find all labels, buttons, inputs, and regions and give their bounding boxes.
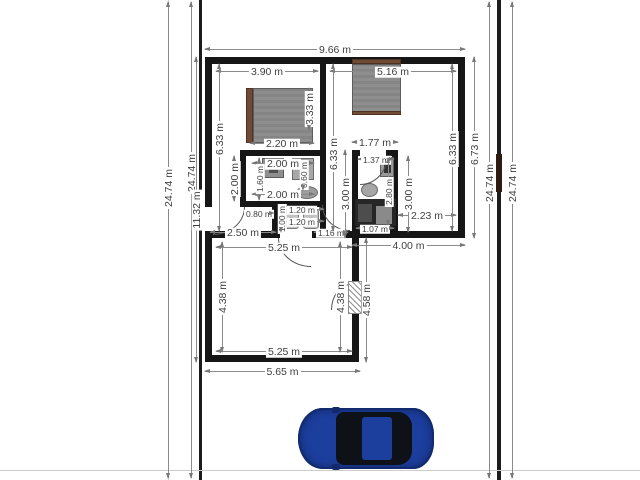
fence-right [497, 0, 501, 480]
wall-top [205, 57, 465, 64]
dim-wc-height: 1.00 m [281, 205, 282, 232]
wall-bath-left [240, 150, 246, 207]
bed-left-headboard[interactable] [246, 88, 253, 143]
dim-right-height-outer: 6.73 m [474, 57, 475, 238]
dim-bedroom-left-width: 3.90 m [216, 71, 318, 72]
dim-lot-depth-left-inner: 24.74 m [191, 2, 192, 478]
wall-right [458, 57, 465, 238]
gate-right[interactable] [496, 154, 502, 192]
kitchen-counter-sink [358, 204, 372, 222]
bed-right-footboard[interactable] [352, 111, 401, 115]
lot-bottom-line [0, 470, 640, 471]
dim-center-height: 6.33 m [333, 64, 334, 231]
dim-right-gap: 2.23 m [398, 215, 456, 216]
dim-corridor-height: 3.00 m [345, 150, 346, 238]
dim-living-width-bottom: 5.25 m [216, 351, 352, 352]
dim-right-height-inner: 6.33 m [452, 64, 453, 231]
dim-lot-depth-right-outer: 24.74 m [512, 2, 513, 478]
dim-bed-left-height: 3.33 m [309, 88, 310, 130]
dim-hall-width: 2.50 m [210, 232, 276, 233]
dim-bath-inner-height: 1.60 m [259, 158, 260, 200]
car[interactable] [298, 408, 434, 469]
dim-bath-height: 2.00 m [234, 156, 235, 201]
dim-bedroom-left-height: 6.33 m [219, 64, 220, 231]
kitchen-basin[interactable] [361, 183, 378, 197]
dim-bed-left-width: 2.20 m [250, 143, 314, 144]
car-mirror-bottom [332, 464, 340, 470]
fence-left [199, 0, 202, 480]
dim-lot-depth-left-outer: 24.74 m [168, 2, 169, 478]
dim-bottom-right-width: 4.00 m [352, 245, 465, 246]
wall-left-upper [205, 57, 212, 207]
wall-bath-top [240, 150, 326, 156]
dim-kitchen-height-inner: 2.80 m [388, 158, 389, 225]
dim-living-outer-height: 4.58 m [366, 238, 367, 362]
dim-kitchen-width-outer: 1.77 m [352, 142, 398, 143]
dim-bath-width-bottom: 2.00 m [252, 194, 314, 195]
dim-living-height-right: 4.38 m [340, 242, 341, 352]
dim-lot-depth-right-inner: 24.74 m [489, 2, 490, 478]
floor-plan-canvas: 24.74 m 24.74 m 11.32 m 24.74 m 24.74 m [0, 0, 640, 480]
wall-living-right-lower [352, 314, 359, 362]
dim-building-width: 9.66 m [205, 49, 465, 50]
dim-right-room-height: 3.00 m [408, 156, 409, 232]
dim-bath-fixture-width: 0.60 m [303, 160, 304, 190]
dim-living-height-left: 4.38 m [222, 242, 223, 352]
dim-building-depth: 11.32 m [196, 57, 197, 362]
dim-bedroom-right-width: 5.16 m [330, 71, 456, 72]
wall-left-lower [205, 237, 212, 362]
car-roof [362, 417, 392, 460]
car-mirror-top [332, 407, 340, 413]
dim-kitchen-bottom-width: 1.07 m [356, 228, 394, 229]
dim-living-width-top: 5.25 m [216, 247, 352, 248]
dim-wc-left: 0.80 m [244, 213, 274, 214]
dim-living-outer-width: 5.65 m [205, 371, 360, 372]
wall-kitchen-top-a [352, 150, 360, 156]
